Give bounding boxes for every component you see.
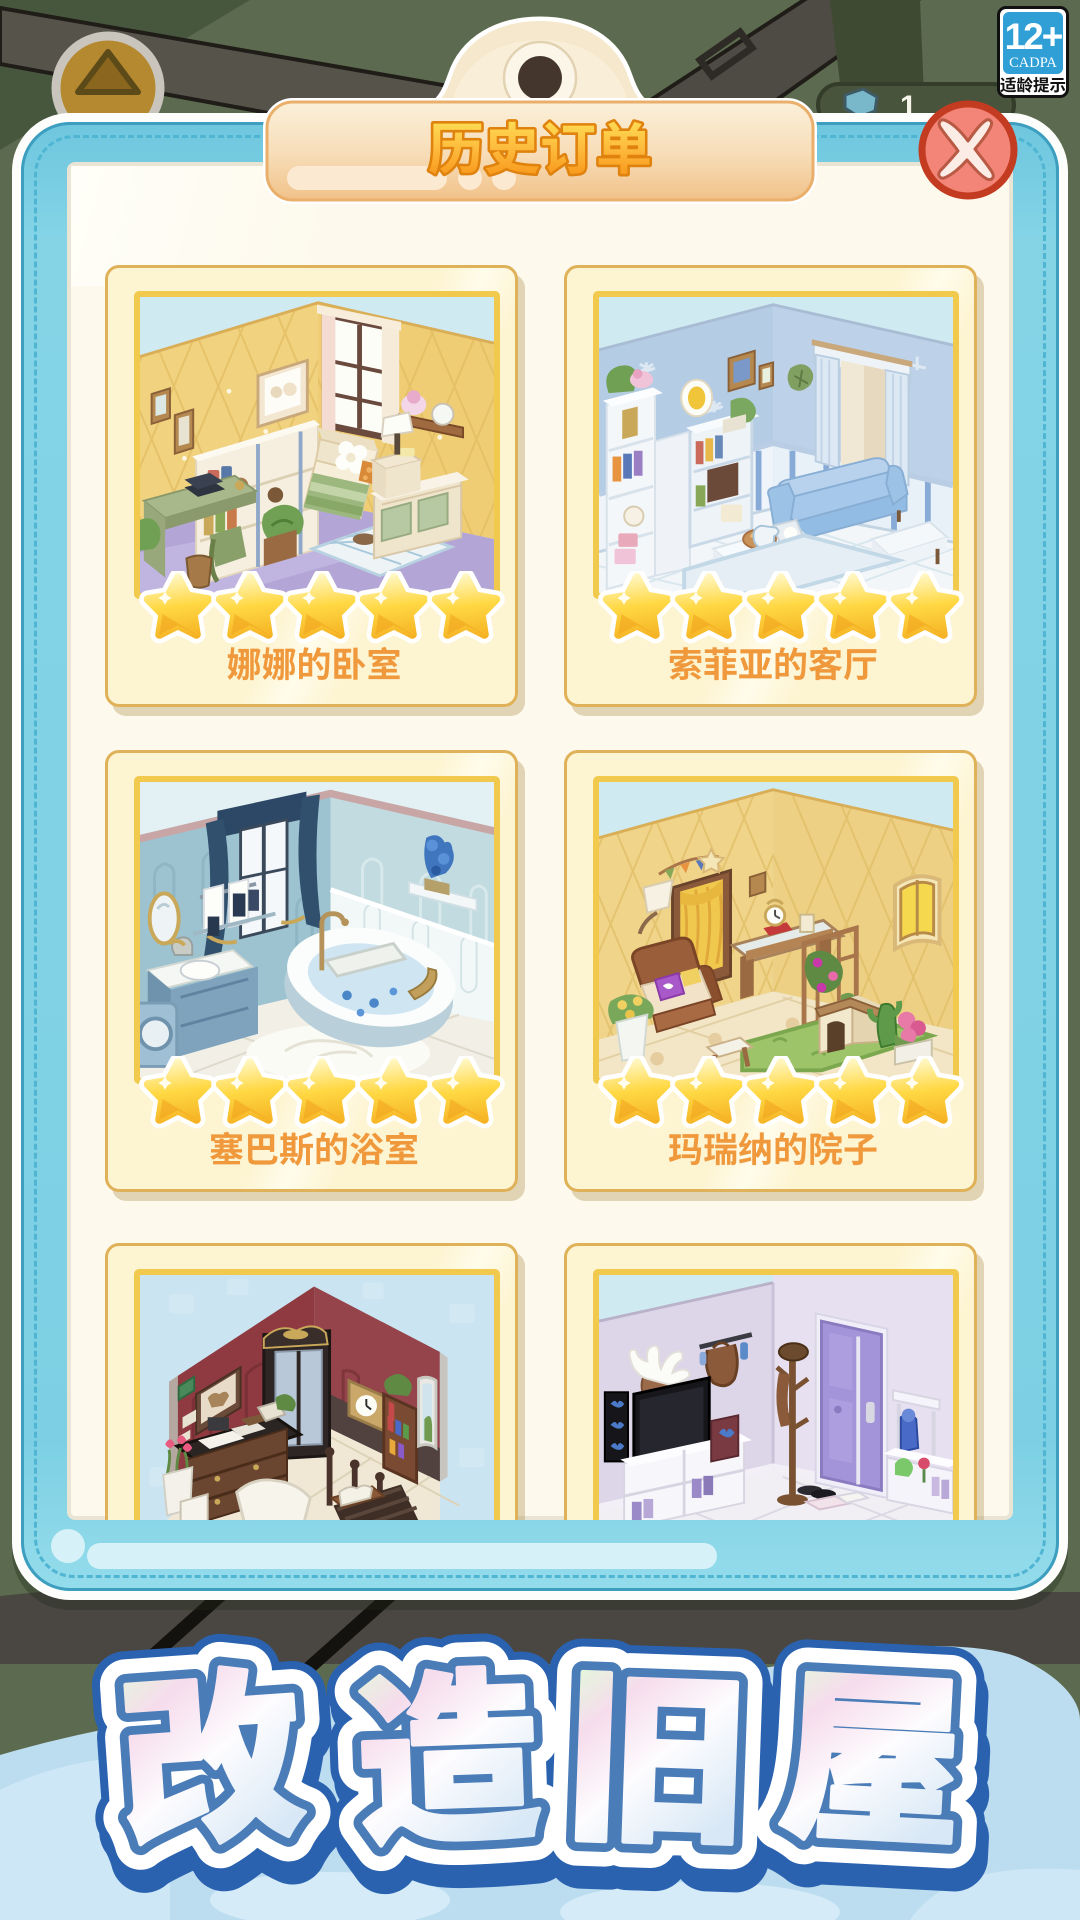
svg-text:CADPA: CADPA	[1009, 55, 1057, 71]
svg-text:12+: 12+	[1005, 16, 1063, 57]
